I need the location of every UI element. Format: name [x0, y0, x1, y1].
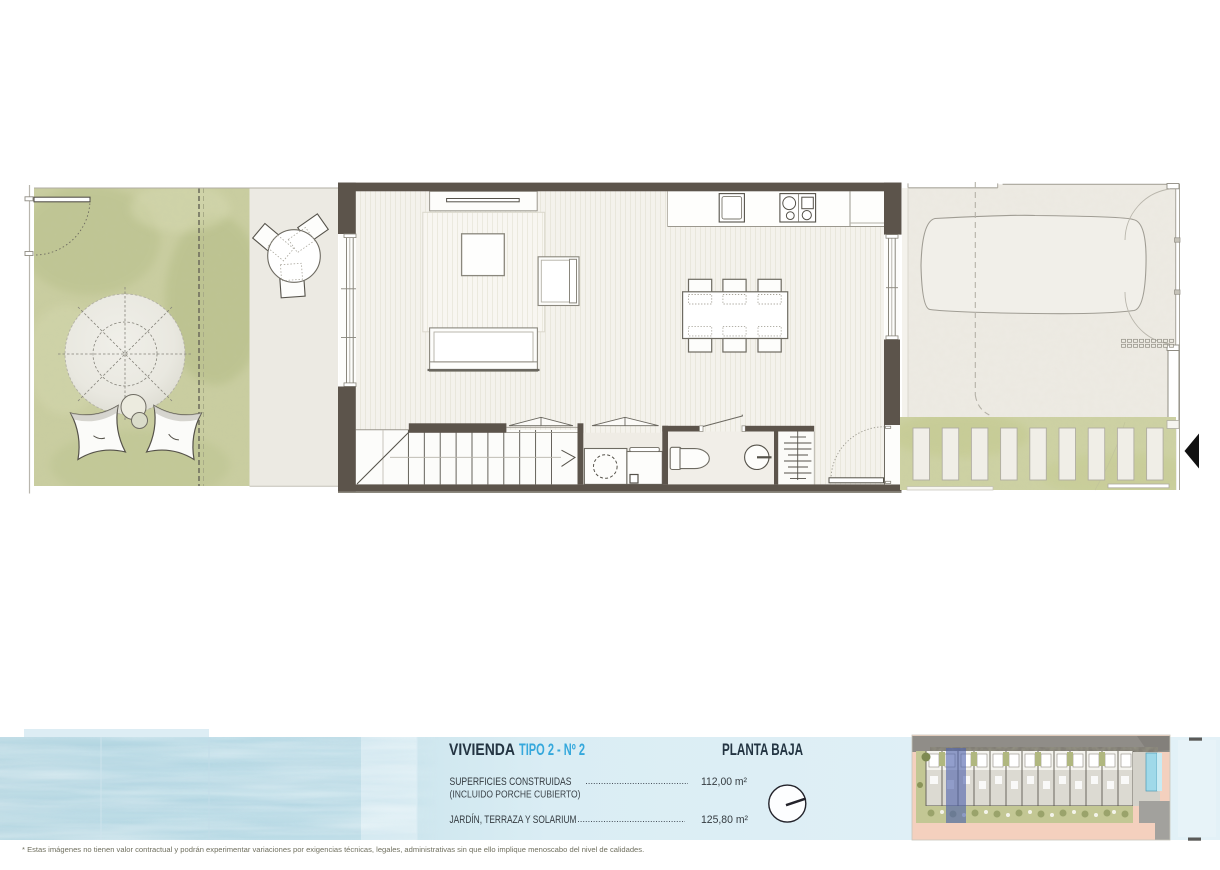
- svg-text:JARDÍN, TERRAZA Y SOLARIUM: JARDÍN, TERRAZA Y SOLARIUM: [450, 813, 577, 826]
- svg-text:112,00 m²: 112,00 m²: [701, 776, 747, 788]
- svg-text:* Estas imágenes no tienen val: * Estas imágenes no tienen valor contrac…: [22, 845, 644, 854]
- svg-text:125,80 m²: 125,80 m²: [701, 814, 748, 826]
- svg-text:PLANTA BAJA: PLANTA BAJA: [722, 741, 803, 759]
- svg-text:(INCLUIDO PORCHE CUBIERTO): (INCLUIDO PORCHE CUBIERTO): [450, 790, 581, 801]
- svg-text:VIVIENDA: VIVIENDA: [449, 741, 515, 759]
- svg-text:TIPO 2 - Nº 2: TIPO 2 - Nº 2: [519, 741, 585, 759]
- svg-text:SUPERFICIES CONSTRUIDAS: SUPERFICIES CONSTRUIDAS: [450, 776, 572, 788]
